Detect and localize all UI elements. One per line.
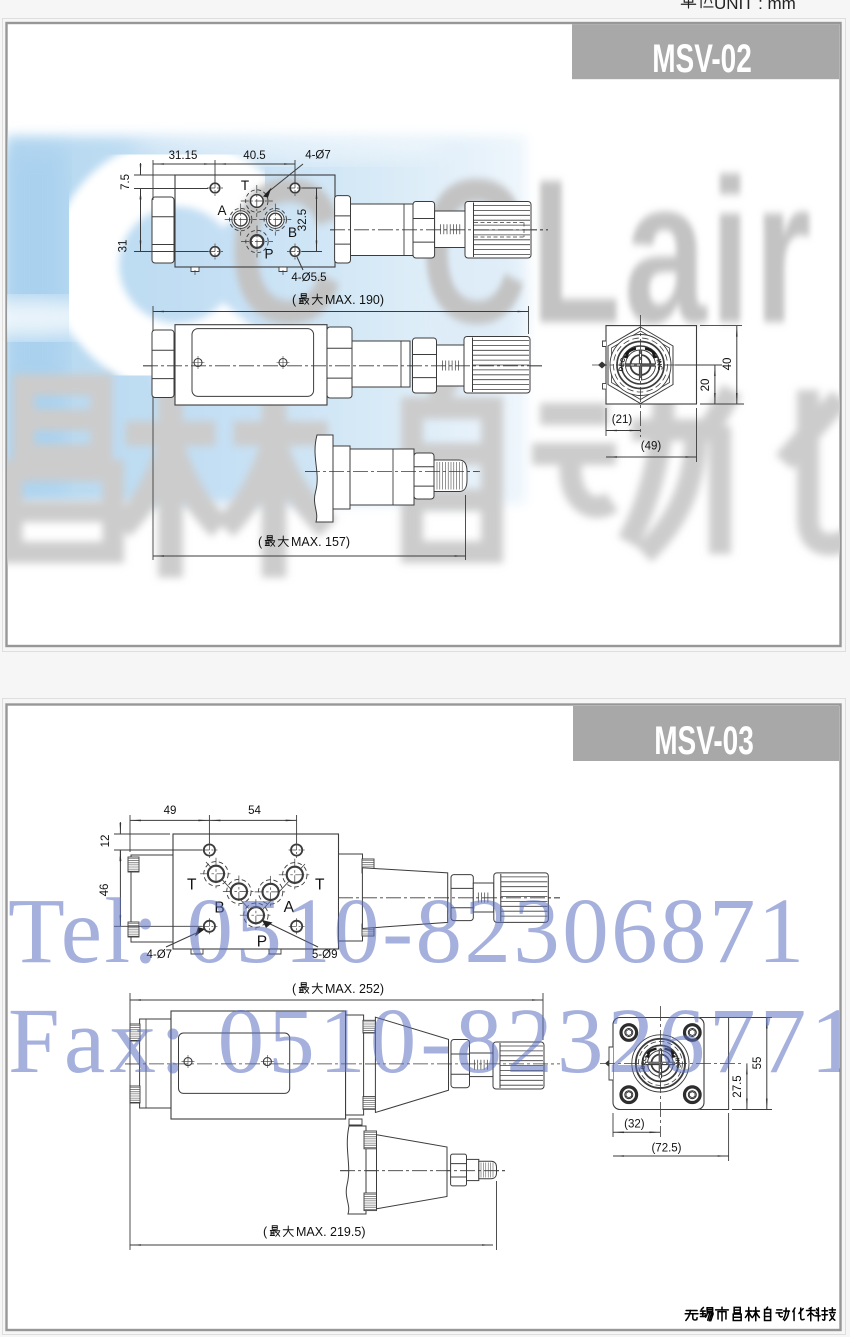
- svg-text:7.5: 7.5: [120, 174, 132, 190]
- svg-text:4-Ø5.5: 4-Ø5.5: [291, 272, 326, 284]
- svg-text:20: 20: [700, 379, 712, 392]
- svg-text:MSV-02: MSV-02: [652, 37, 752, 81]
- svg-text:4-Ø7: 4-Ø7: [305, 150, 331, 162]
- svg-text:(21): (21): [612, 414, 633, 426]
- svg-text:UNIT : mm: UNIT : mm: [714, 0, 796, 13]
- svg-text:32.5: 32.5: [297, 209, 309, 231]
- svg-text:12: 12: [100, 835, 112, 848]
- svg-text:B: B: [288, 225, 297, 240]
- svg-text:MSV-03: MSV-03: [654, 719, 754, 763]
- svg-text:(32): (32): [624, 1119, 645, 1131]
- svg-text:49: 49: [164, 805, 177, 817]
- svg-text:Tel: 0510-82306871: Tel: 0510-82306871: [8, 880, 807, 983]
- svg-text:A: A: [217, 203, 226, 218]
- svg-text:31.15: 31.15: [169, 150, 198, 162]
- svg-text:(72.5): (72.5): [651, 1143, 681, 1155]
- svg-text:MAX. 190): MAX. 190): [325, 293, 384, 307]
- svg-text:MAX. 157): MAX. 157): [291, 535, 350, 549]
- svg-text:MAX. 219.5): MAX. 219.5): [296, 1225, 365, 1239]
- svg-text:(49): (49): [641, 441, 662, 453]
- svg-text:40: 40: [722, 358, 734, 371]
- svg-text:P: P: [264, 247, 273, 262]
- svg-text:54: 54: [248, 805, 261, 817]
- svg-text:T: T: [241, 178, 249, 193]
- svg-text:31: 31: [118, 240, 130, 253]
- svg-text:40.5: 40.5: [243, 150, 265, 162]
- svg-text:Fax: 0510-82326771: Fax: 0510-82326771: [8, 990, 850, 1093]
